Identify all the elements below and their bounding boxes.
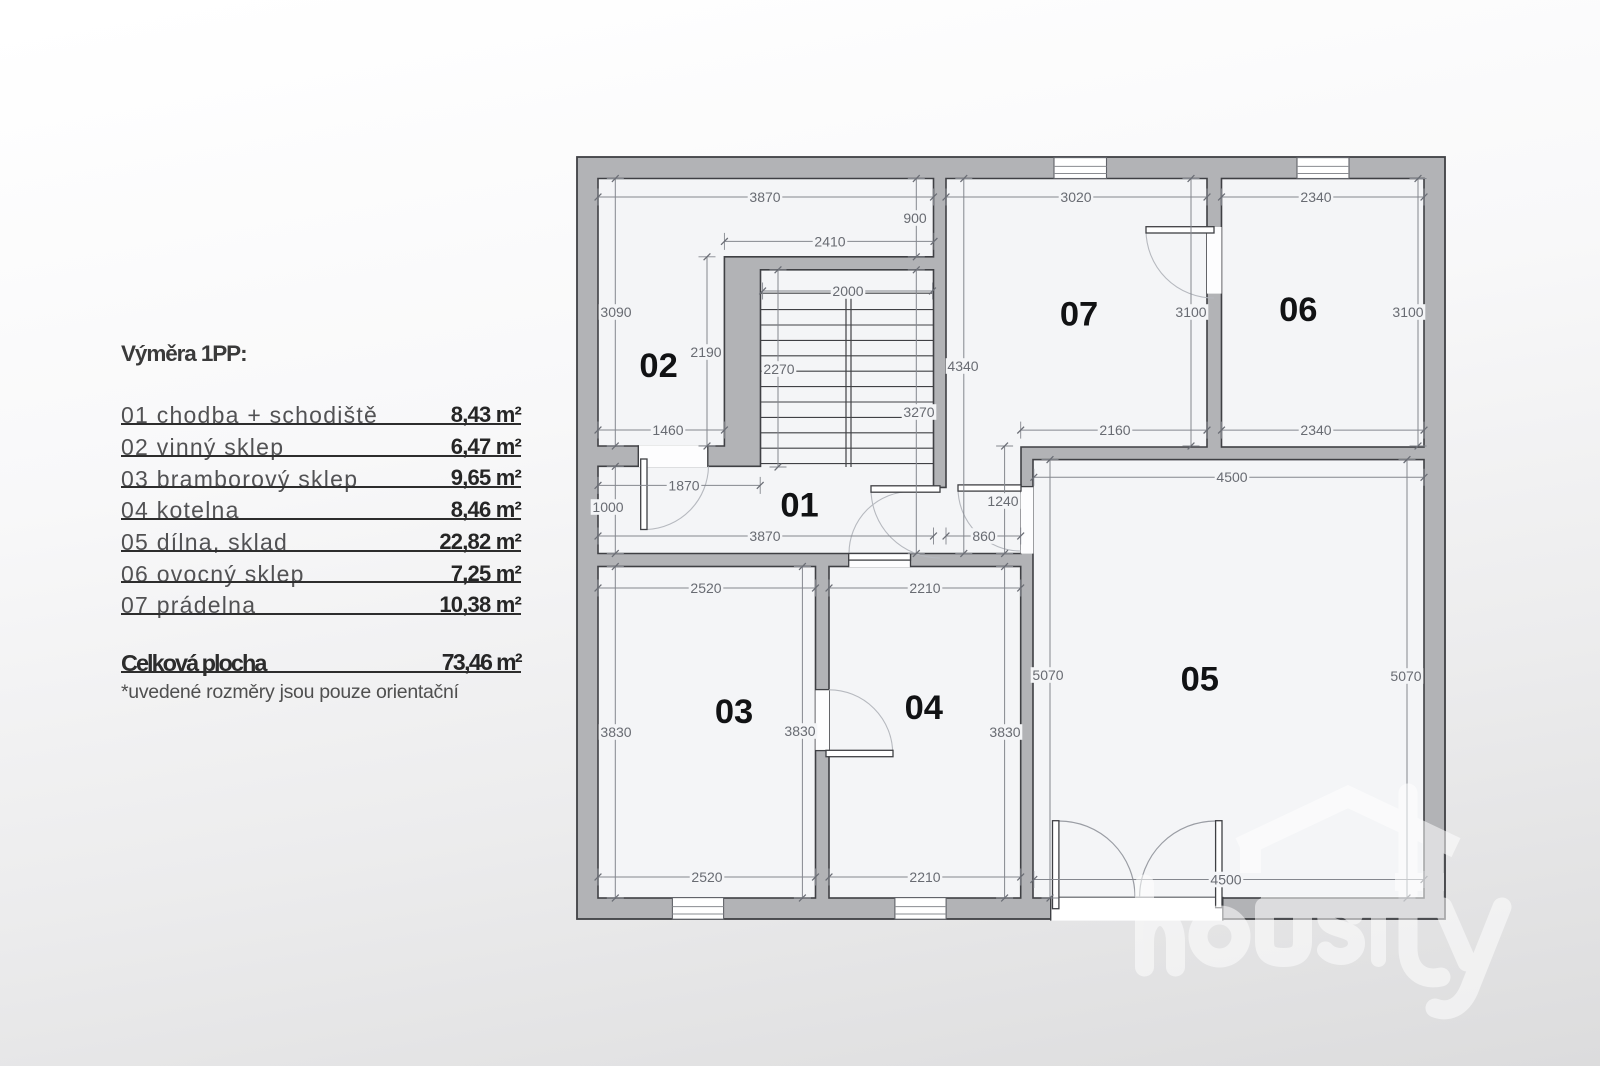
svg-text:1240: 1240 bbox=[987, 493, 1018, 509]
svg-text:01: 01 bbox=[780, 487, 818, 525]
svg-text:2520: 2520 bbox=[691, 869, 722, 885]
svg-text:3870: 3870 bbox=[749, 528, 780, 544]
svg-text:06: 06 bbox=[1279, 291, 1317, 329]
svg-text:2210: 2210 bbox=[909, 869, 940, 885]
svg-text:2160: 2160 bbox=[1099, 422, 1130, 438]
svg-text:2270: 2270 bbox=[763, 361, 794, 377]
svg-text:3870: 3870 bbox=[749, 189, 780, 205]
svg-text:02: 02 bbox=[639, 347, 677, 385]
svg-text:860: 860 bbox=[972, 528, 996, 544]
svg-text:3100: 3100 bbox=[1392, 304, 1423, 320]
svg-text:900: 900 bbox=[903, 210, 927, 226]
svg-text:4340: 4340 bbox=[947, 358, 978, 374]
svg-text:3090: 3090 bbox=[600, 304, 631, 320]
svg-text:3100: 3100 bbox=[1175, 304, 1206, 320]
svg-text:3020: 3020 bbox=[1060, 189, 1091, 205]
svg-text:3270: 3270 bbox=[903, 404, 934, 420]
svg-text:4500: 4500 bbox=[1216, 469, 1247, 485]
svg-text:2340: 2340 bbox=[1300, 189, 1331, 205]
svg-text:5070: 5070 bbox=[1390, 668, 1421, 684]
svg-text:2340: 2340 bbox=[1300, 422, 1331, 438]
svg-text:3830: 3830 bbox=[784, 723, 815, 739]
svg-text:03: 03 bbox=[715, 693, 753, 731]
svg-text:1000: 1000 bbox=[592, 499, 623, 515]
svg-text:04: 04 bbox=[905, 689, 943, 727]
svg-text:3830: 3830 bbox=[989, 724, 1020, 740]
svg-text:4500: 4500 bbox=[1210, 871, 1241, 887]
svg-text:1870: 1870 bbox=[668, 477, 699, 493]
svg-text:2410: 2410 bbox=[814, 233, 845, 249]
svg-text:3830: 3830 bbox=[600, 724, 631, 740]
svg-text:1460: 1460 bbox=[652, 422, 683, 438]
svg-text:2190: 2190 bbox=[690, 344, 721, 360]
svg-text:5070: 5070 bbox=[1032, 667, 1063, 683]
svg-text:07: 07 bbox=[1060, 295, 1098, 333]
svg-text:2000: 2000 bbox=[832, 283, 863, 299]
svg-text:05: 05 bbox=[1181, 660, 1219, 698]
svg-text:2520: 2520 bbox=[690, 580, 721, 596]
svg-text:2210: 2210 bbox=[909, 580, 940, 596]
